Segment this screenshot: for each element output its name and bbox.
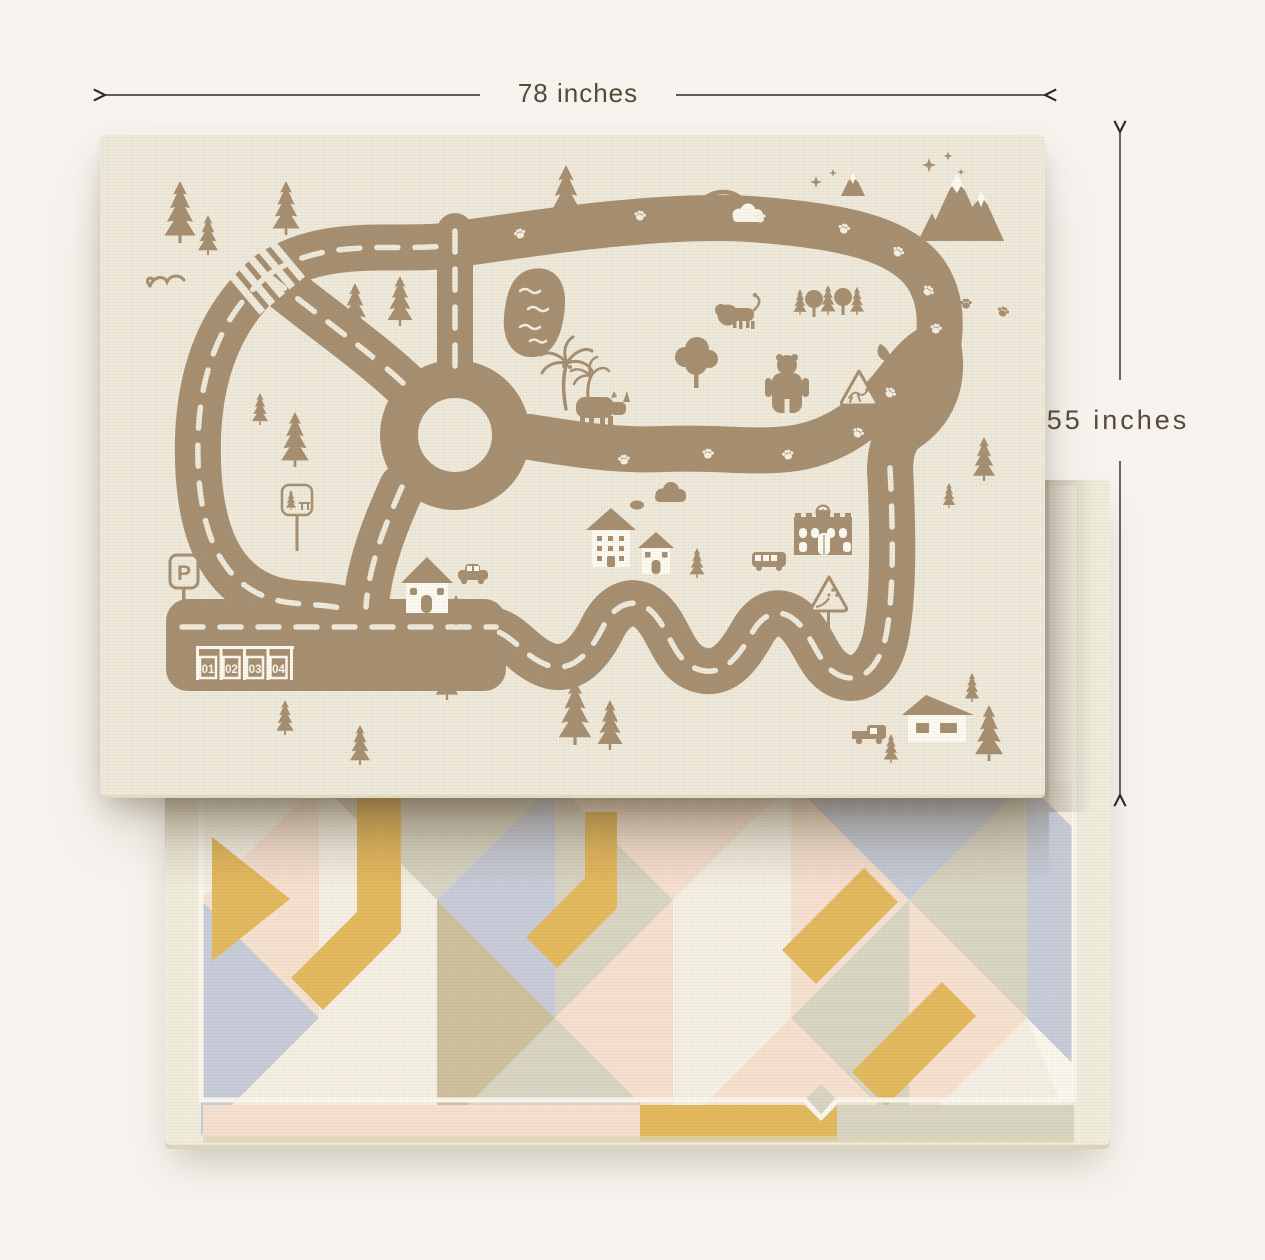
house-icon (401, 557, 453, 613)
parking-space-number: 02 (225, 664, 238, 676)
clouds-icon (630, 482, 686, 510)
deciduous-tree-icon (675, 337, 718, 388)
lion-icon (715, 293, 759, 329)
pickup-truck-icon (852, 725, 886, 744)
bird-icon (148, 276, 184, 286)
house-icon (902, 695, 974, 742)
parking-sign: P (170, 555, 198, 601)
school-building-icon (794, 505, 852, 556)
height-dimension: 55 inches (1048, 118, 1198, 810)
paw-prints-tan (960, 299, 1010, 318)
parking-space-number: 04 (272, 664, 285, 676)
parking-space-number: 01 (202, 664, 215, 676)
bear-icon (765, 354, 809, 413)
width-dimension: 78 inches (95, 80, 1055, 110)
height-dimension-label: 55 inches (1047, 405, 1190, 435)
car-icon (458, 564, 488, 584)
houses-icon (586, 508, 674, 574)
bus-icon (752, 552, 786, 571)
product-dimension-photo: 01 02 03 04 P (0, 0, 1265, 1260)
roundabout (399, 379, 511, 491)
width-dimension-label: 78 inches (518, 78, 638, 108)
parking-space-number: 03 (249, 664, 262, 676)
rhino-icon (576, 391, 630, 425)
pond-icon (504, 268, 565, 357)
park-sign-icon (282, 485, 312, 551)
road-map-print: 01 02 03 04 P (100, 133, 1045, 795)
stars-icon (810, 151, 964, 188)
play-mat-road-side: 01 02 03 04 P (100, 133, 1045, 795)
parking-sign-letter: P (177, 562, 191, 585)
